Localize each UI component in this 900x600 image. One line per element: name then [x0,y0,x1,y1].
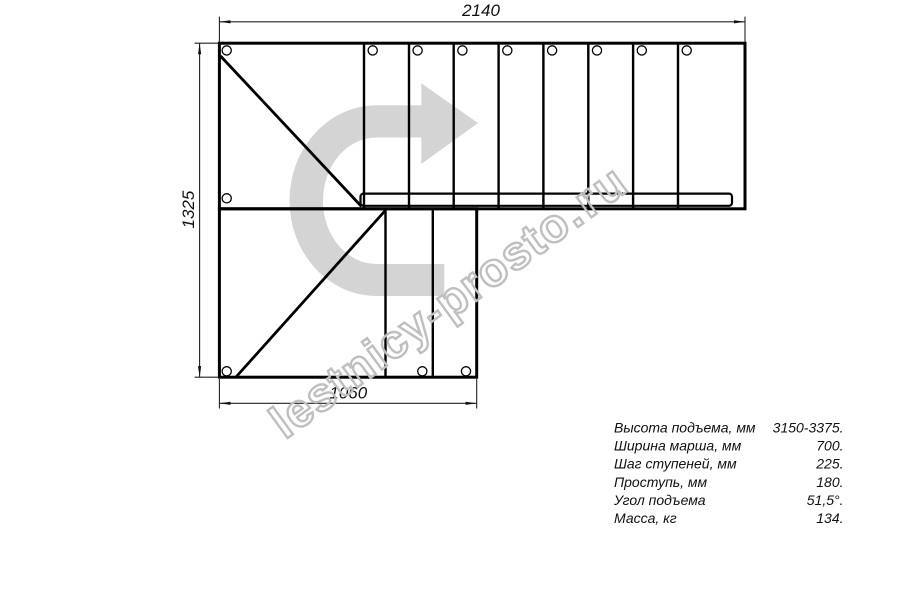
svg-text:225.: 225. [815,456,843,472]
svg-text:700.: 700. [816,438,843,454]
svg-text:Шаг ступеней, мм: Шаг ступеней, мм [614,456,737,472]
svg-text:Высота подъема, мм: Высота подъема, мм [614,420,756,436]
svg-text:Ширина марша, мм: Ширина марша, мм [614,438,742,454]
svg-text:134.: 134. [816,510,843,526]
svg-text:Проступь, мм: Проступь, мм [614,474,708,490]
svg-text:Угол подъема: Угол подъема [613,492,706,508]
svg-text:180.: 180. [816,474,843,490]
svg-text:3150-3375.: 3150-3375. [773,420,844,436]
svg-text:Масса, кг: Масса, кг [614,510,677,526]
svg-text:51,5°.: 51,5°. [807,492,844,508]
svg-text:1325: 1325 [179,190,198,228]
svg-text:2140: 2140 [461,1,500,20]
